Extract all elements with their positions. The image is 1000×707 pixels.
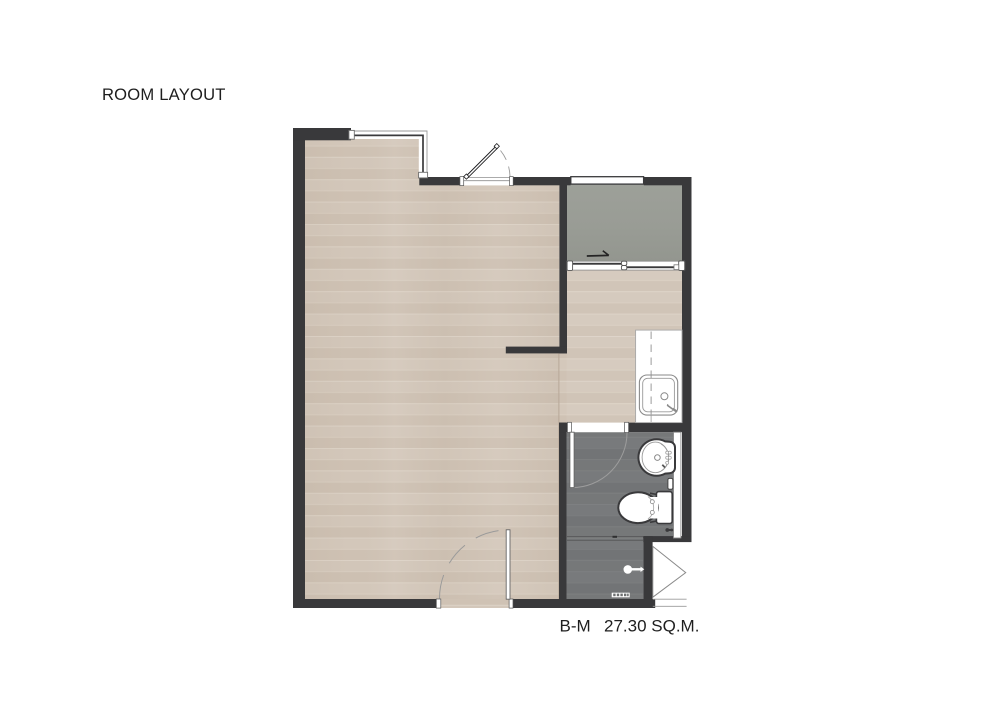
svg-text:ROOM LAYOUT: ROOM LAYOUT: [102, 85, 226, 104]
svg-text:27.30 SQ.M.: 27.30 SQ.M.: [604, 617, 699, 636]
svg-text:B-M: B-M: [560, 617, 591, 636]
